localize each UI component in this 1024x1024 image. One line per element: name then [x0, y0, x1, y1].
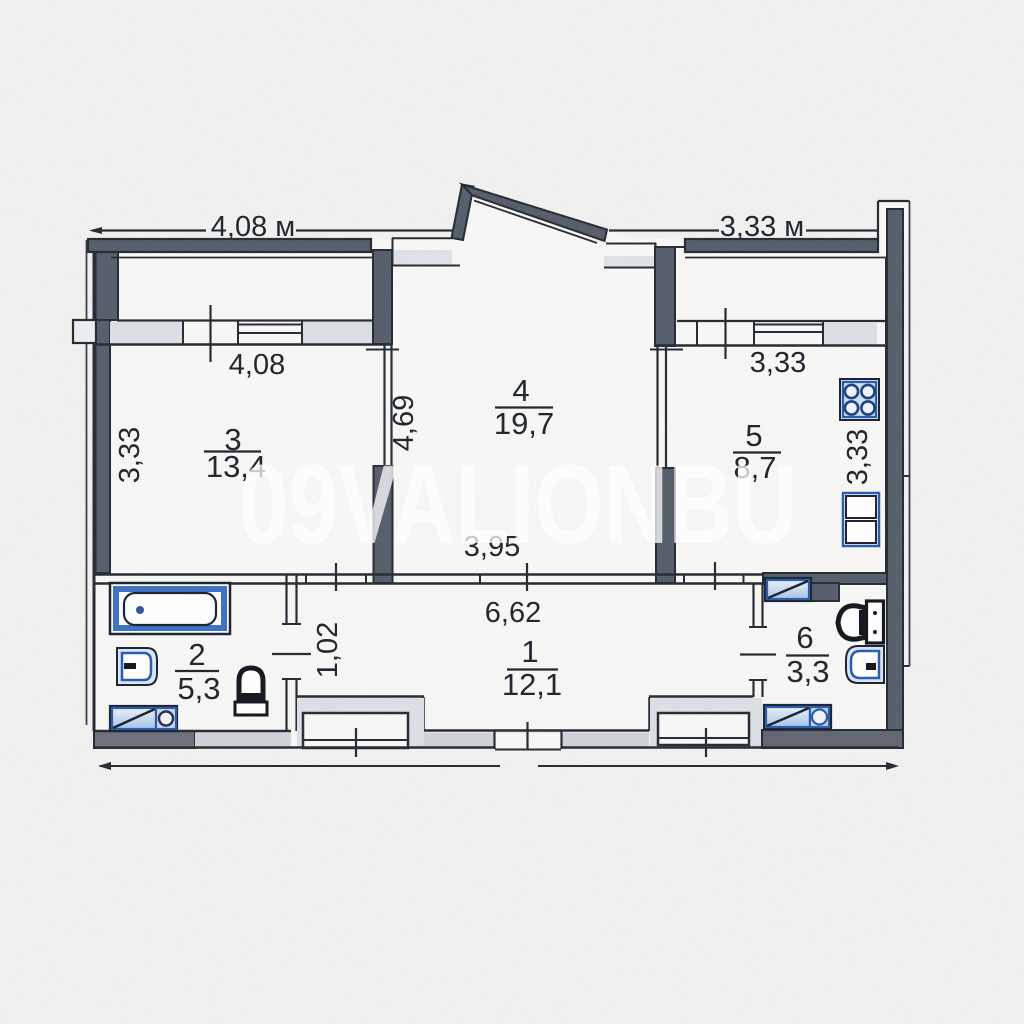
svg-text:4,08: 4,08: [229, 349, 285, 381]
svg-text:2: 2: [188, 637, 205, 672]
svg-text:3,33: 3,33: [114, 427, 146, 483]
svg-text:3,33: 3,33: [842, 429, 874, 485]
svg-text:1,02: 1,02: [312, 622, 344, 678]
svg-text:3,33: 3,33: [750, 347, 806, 379]
svg-text:4: 4: [512, 373, 529, 408]
svg-text:3,3: 3,3: [786, 654, 829, 689]
svg-text:12,1: 12,1: [502, 667, 562, 702]
svg-text:6,62: 6,62: [485, 597, 541, 629]
svg-text:19,7: 19,7: [494, 406, 554, 441]
svg-text:5,3: 5,3: [177, 671, 220, 706]
svg-text:6: 6: [796, 620, 813, 655]
svg-text:09VALIONBU: 09VALIONBU: [239, 442, 797, 567]
svg-text:1: 1: [521, 634, 538, 669]
